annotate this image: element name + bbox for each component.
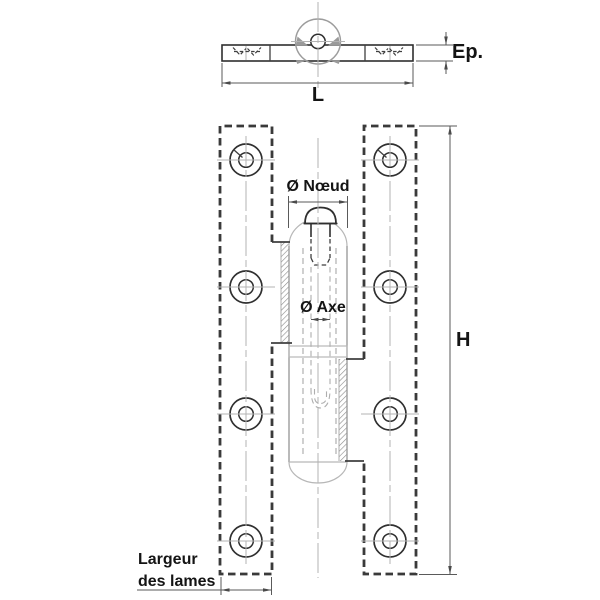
- right-web-hatch: [339, 359, 348, 461]
- fillet-lower-right: [330, 60, 340, 64]
- pin-diameter-label: Ø Axe: [300, 299, 346, 316]
- pin-head: [305, 208, 336, 224]
- arrowhead: [448, 566, 452, 575]
- hinge-technical-drawing: Ep. L: [0, 0, 600, 600]
- arrowhead: [311, 318, 319, 321]
- length-label: L: [312, 84, 324, 106]
- dimension-pin-diameter: Ø Axe: [300, 299, 346, 321]
- height-label: H: [456, 329, 470, 351]
- knuckle-diameter-label: Ø Nœud: [286, 178, 349, 195]
- pin-taper: [311, 258, 330, 265]
- top-section-view: Ep. L: [222, 2, 483, 106]
- pin-hidden-tip-inner: [315, 389, 327, 404]
- arrowhead: [444, 37, 448, 46]
- arrowhead: [339, 200, 348, 204]
- pin-hidden-tip: [311, 389, 330, 408]
- hinge-technical-drawing-page: Ep. L: [0, 0, 600, 600]
- arrowhead: [405, 81, 414, 85]
- arrowhead: [323, 318, 331, 321]
- arrowhead: [222, 81, 231, 85]
- arrowhead: [448, 126, 452, 135]
- countersink-marks-left: [233, 46, 261, 60]
- arrowhead: [289, 200, 298, 204]
- arrowhead: [221, 588, 230, 592]
- left-web-hatch: [281, 242, 290, 343]
- dimension-height: H: [419, 126, 470, 575]
- fillet-lower-left: [296, 60, 306, 64]
- arrowhead: [444, 61, 448, 70]
- front-view: Ø Nœud Ø Axe H Largeur des lames: [137, 126, 470, 595]
- leaf-width-label-line2: des lames: [138, 573, 215, 590]
- arrowhead: [263, 588, 272, 592]
- thickness-label: Ep.: [452, 41, 483, 63]
- dimension-thickness: Ep.: [416, 32, 483, 74]
- countersink-marks-right: [375, 46, 403, 60]
- leaf-width-label-line1: Largeur: [138, 551, 198, 568]
